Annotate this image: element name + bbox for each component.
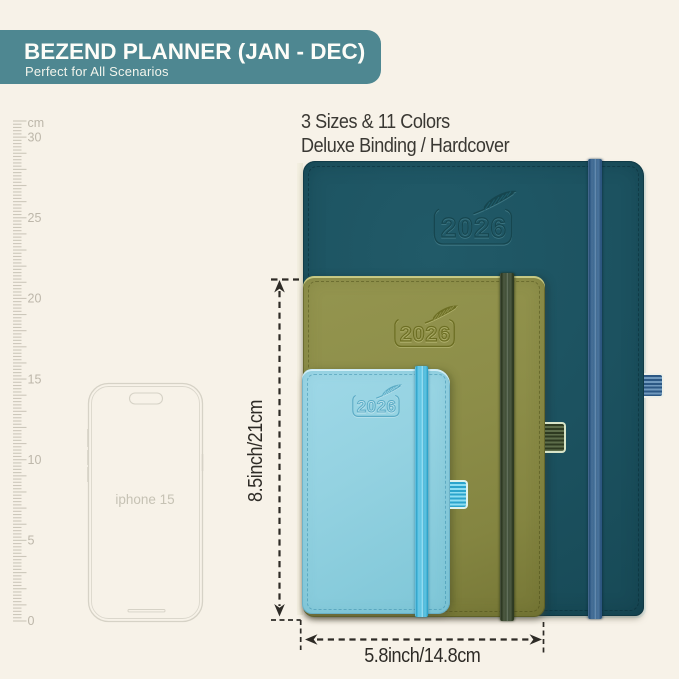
svg-text:0: 0 — [28, 614, 35, 628]
svg-text:2026: 2026 — [357, 397, 397, 416]
svg-text:20: 20 — [28, 292, 42, 306]
svg-text:2026: 2026 — [441, 212, 507, 243]
svg-text:5: 5 — [28, 534, 35, 548]
svg-text:15: 15 — [28, 372, 42, 386]
svg-text:iphone 15: iphone 15 — [115, 492, 174, 507]
svg-text:30: 30 — [28, 130, 42, 144]
svg-text:25: 25 — [28, 211, 42, 225]
svg-text:cm: cm — [28, 116, 45, 130]
svg-text:2026: 2026 — [400, 322, 451, 346]
svg-text:10: 10 — [28, 453, 42, 467]
